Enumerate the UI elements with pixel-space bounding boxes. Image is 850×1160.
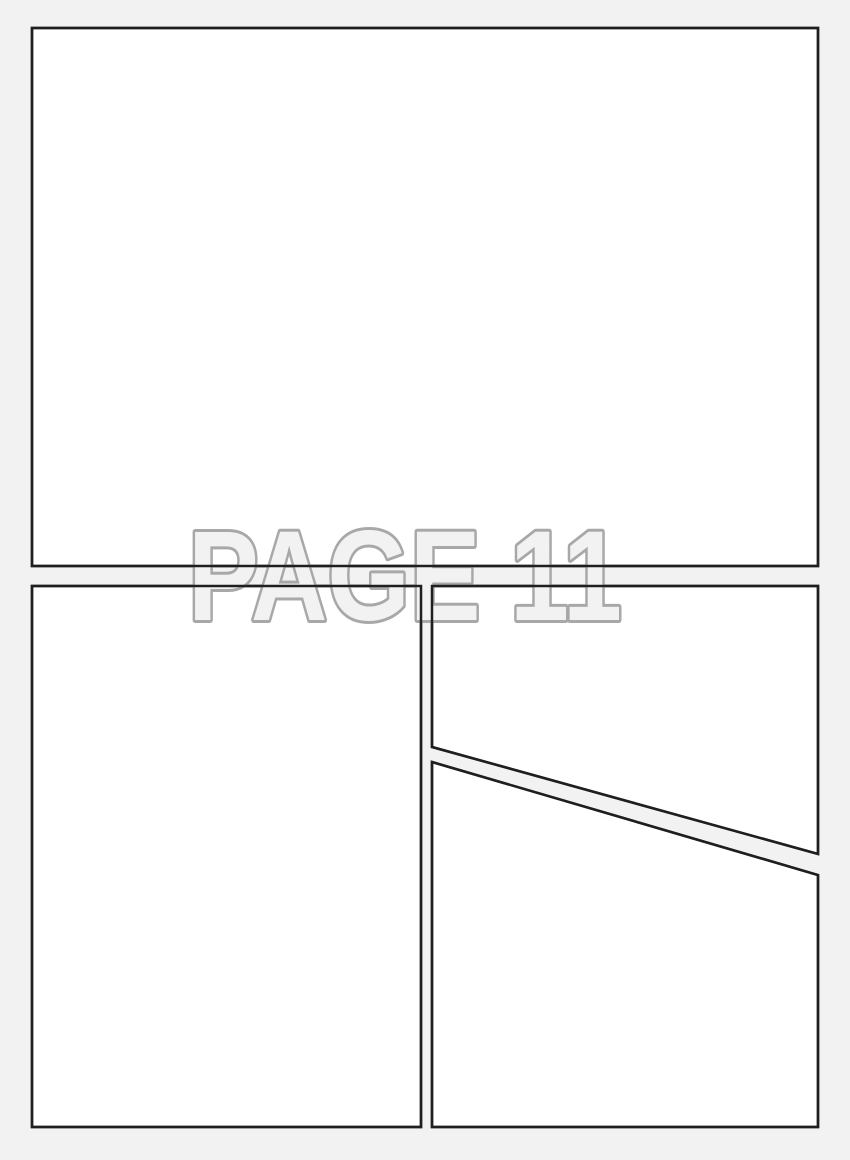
top-panel	[32, 28, 818, 566]
bottom-left-panel	[32, 586, 421, 1127]
comic-page-template: PAGE 11	[0, 0, 850, 1160]
comic-template-canvas: PAGE 11	[0, 0, 850, 1160]
page-title: PAGE 11	[188, 505, 622, 648]
